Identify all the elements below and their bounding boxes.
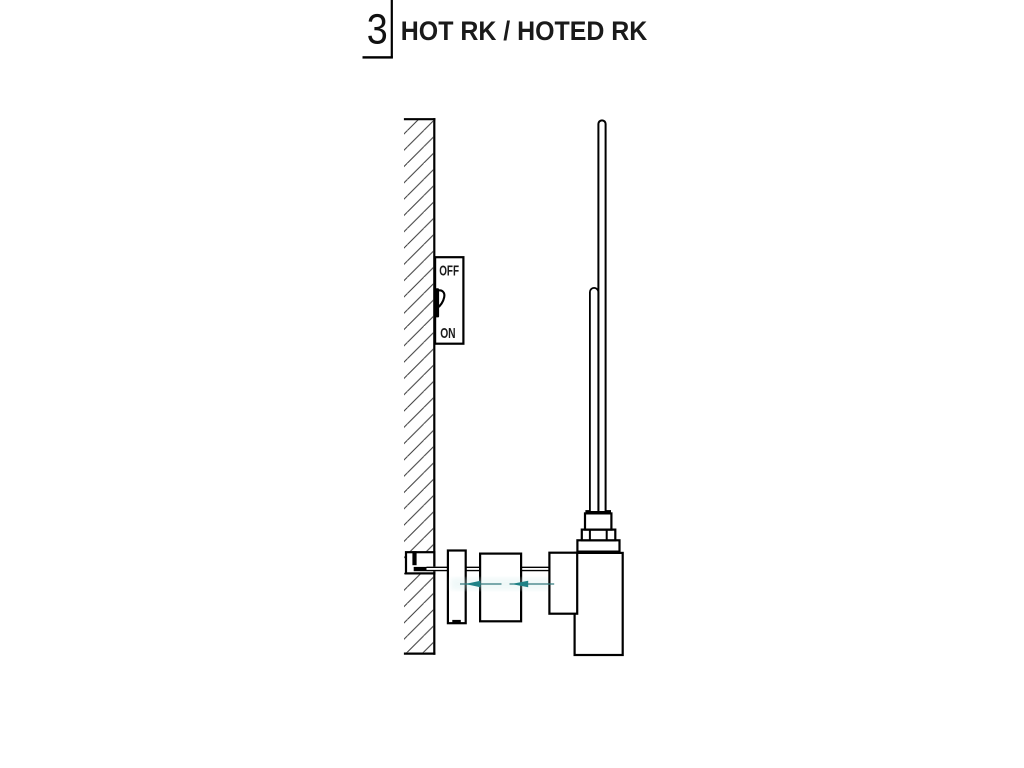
svg-text:OFF: OFF — [439, 263, 459, 280]
svg-text:ON: ON — [440, 325, 455, 342]
svg-text:3: 3 — [367, 6, 388, 54]
svg-text:HOT RK / HOTED RK: HOT RK / HOTED RK — [401, 16, 648, 46]
